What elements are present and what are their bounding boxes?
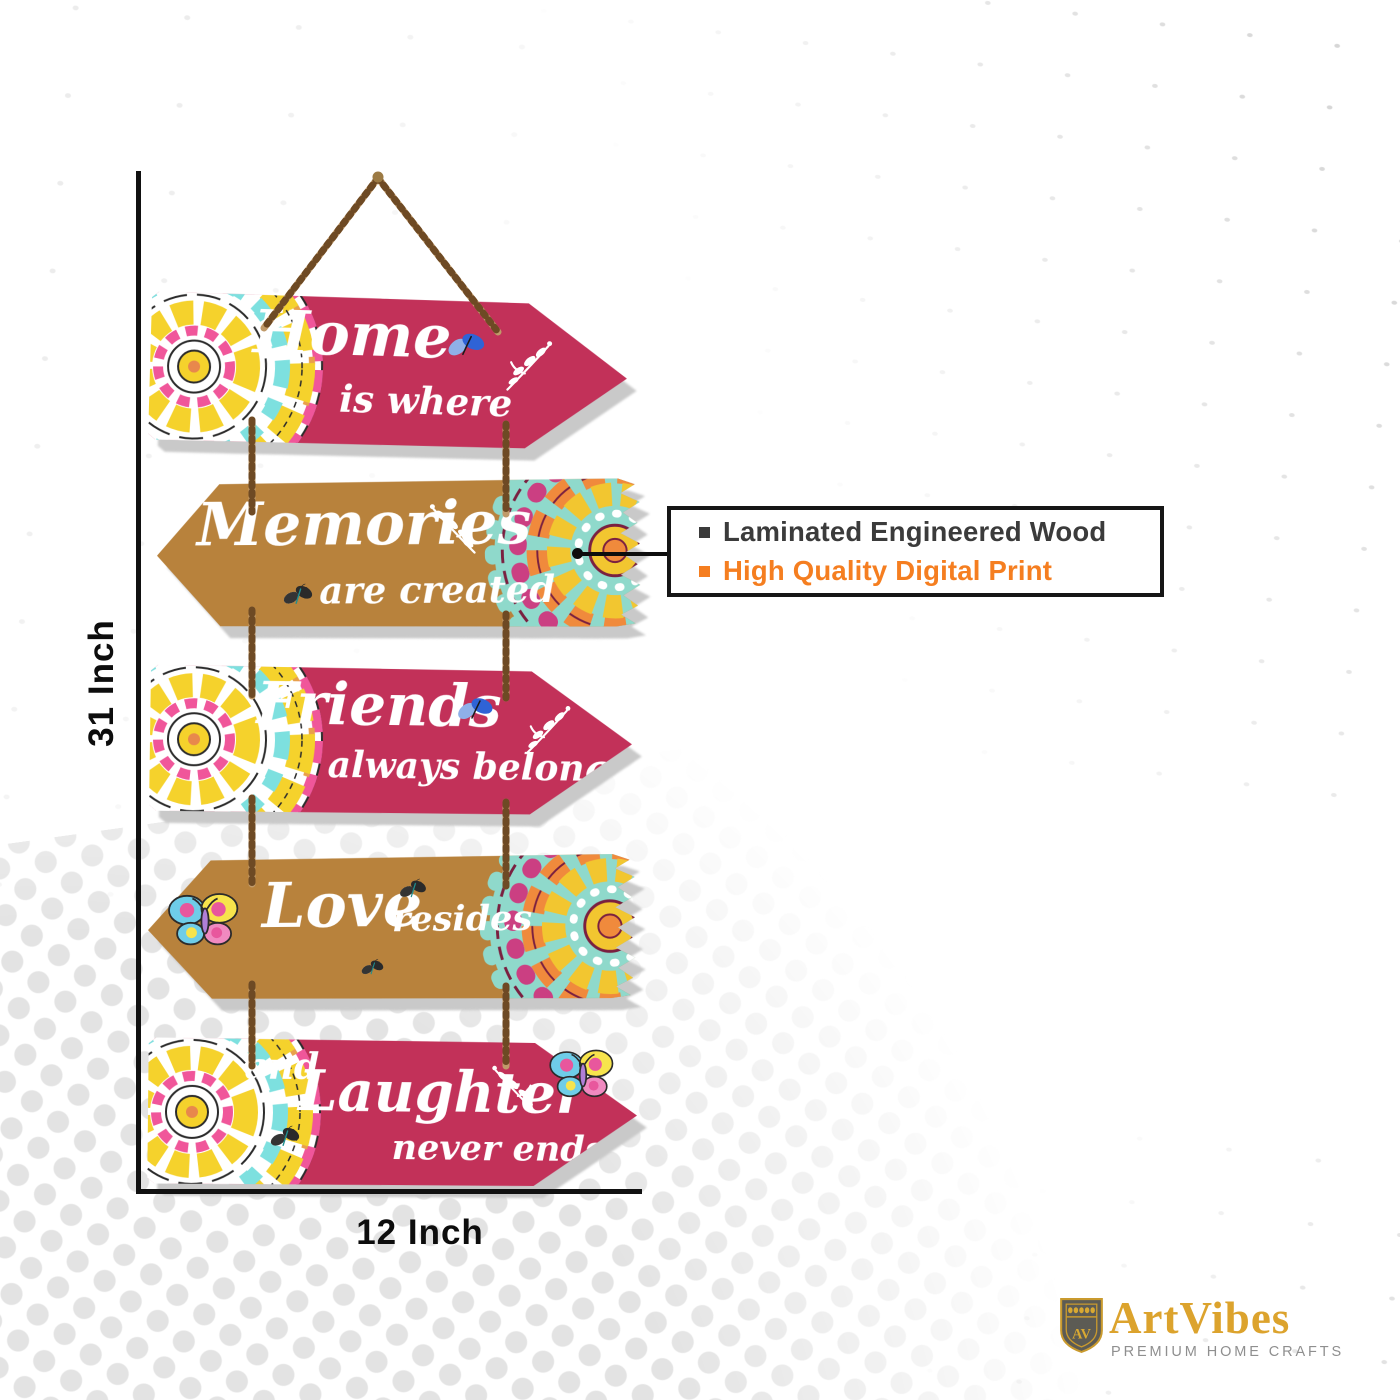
square-bullet-icon (699, 566, 710, 577)
width-dimension-line (136, 1189, 642, 1194)
plank-text-main: Laughter (298, 1063, 586, 1122)
height-dimension-label: 31 Inch (82, 603, 122, 763)
callout-item-label: Laminated Engineered Wood (723, 516, 1106, 548)
wall-hanging-product-image: Home is where Memories are created Frien… (0, 0, 1400, 1400)
plank-text-sub: are created (319, 571, 555, 610)
plank-laughter: and Laughter never ends (147, 1037, 638, 1188)
brand-tagline: PREMIUM HOME CRAFTS (1111, 1344, 1344, 1360)
plank-home: Home is where (148, 291, 629, 452)
brand-name: ArtVibes (1109, 1296, 1344, 1341)
plank-love: Love resides (147, 854, 635, 1002)
plank-text-main: Memories (197, 493, 532, 555)
plank-text-sub: always belong (327, 747, 610, 787)
plank-text-sub: is where (339, 381, 513, 423)
plank-friends: Friends always belong (149, 665, 633, 818)
brand-shield-icon: AV (1058, 1296, 1105, 1355)
plank-text-main: Home (252, 302, 452, 368)
brand-logo: AV ArtVibes PREMIUM HOME CRAFTS (1058, 1296, 1344, 1360)
plank-text-main: Friends (256, 674, 502, 735)
square-bullet-icon (699, 527, 710, 538)
callout-item-label: High Quality Digital Print (723, 555, 1052, 587)
brand-monogram: AV (1072, 1327, 1091, 1343)
rope-knot (373, 172, 384, 183)
material-callout-box: Laminated Engineered Wood High Quality D… (667, 506, 1164, 597)
width-dimension-label: 12 Inch (330, 1213, 510, 1253)
callout-item-print: High Quality Digital Print (699, 555, 1160, 587)
callout-connector-line (578, 552, 668, 556)
mandala-flower-icon (51, 970, 334, 1253)
plank-memories: Memories are created (156, 478, 640, 629)
plank-text-sub: never ends (391, 1130, 604, 1167)
plank-text-sub: resides (392, 901, 532, 937)
height-dimension-line (136, 171, 141, 1192)
callout-item-material: Laminated Engineered Wood (699, 516, 1160, 548)
